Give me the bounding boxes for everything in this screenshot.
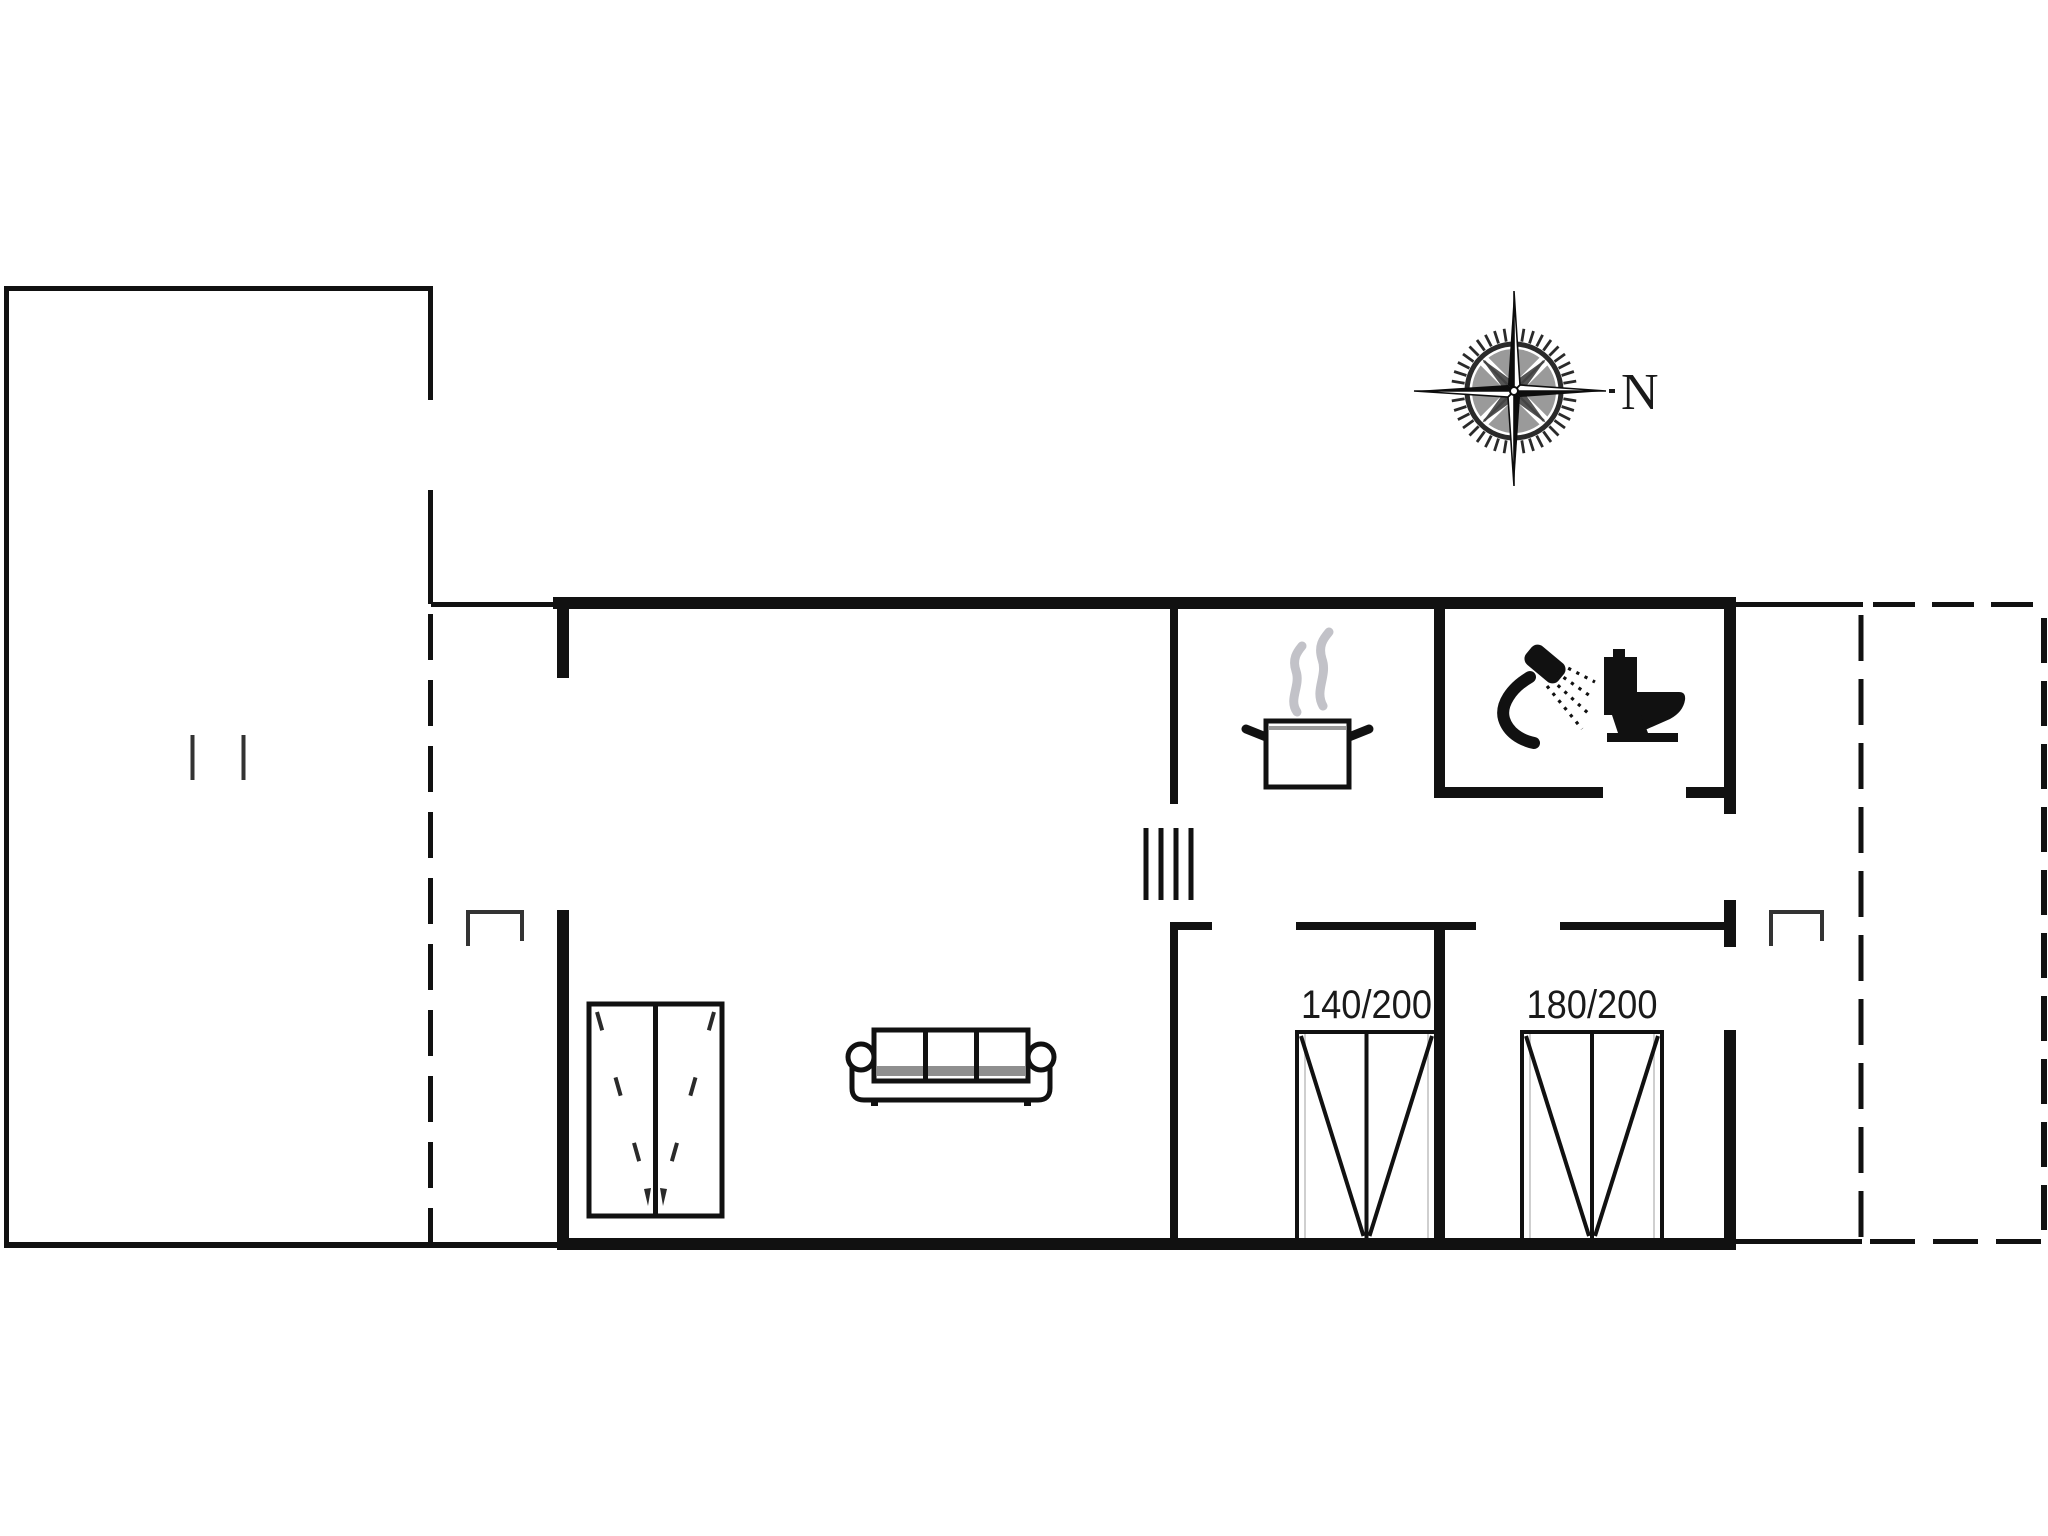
svg-text:N: N — [1621, 364, 1659, 421]
svg-text:140/200: 140/200 — [1301, 983, 1432, 1027]
svg-text:180/200: 180/200 — [1527, 983, 1658, 1027]
